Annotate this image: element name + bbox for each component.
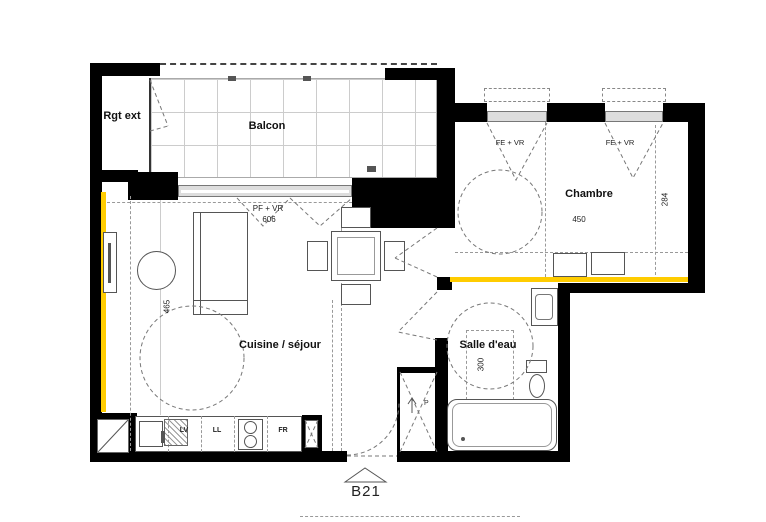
room-label-bathroom: Salle d'eau xyxy=(448,339,528,351)
bedroom-top-wall-b xyxy=(547,103,605,122)
balcony-drain xyxy=(367,166,376,172)
room-label-balcony: Balcon xyxy=(227,120,307,132)
room-label-storage: Rgt ext xyxy=(92,110,152,122)
dim-bedroom-depth: 284 xyxy=(661,185,670,215)
bedroom-top-wall-a xyxy=(455,103,487,122)
dining-table-top xyxy=(337,237,375,275)
bathroom-door-swing xyxy=(398,292,437,340)
unit-number: B21 xyxy=(336,483,396,500)
entrance-door-swing xyxy=(347,403,399,456)
window-shutter-box xyxy=(484,88,550,102)
bedroom-bottom-wall xyxy=(558,283,705,293)
room-label-bedroom: Chambre xyxy=(549,188,629,200)
dim-bay-width: 606 xyxy=(249,215,289,224)
bathroom-right-wall xyxy=(558,283,570,462)
dim-bedroom-width: 450 xyxy=(559,215,599,224)
closet-side-wall xyxy=(397,372,400,452)
faucet xyxy=(161,431,165,443)
bedroom-window-2 xyxy=(605,111,663,122)
cooktop-burner xyxy=(244,435,257,448)
living-corner-wall xyxy=(128,172,178,200)
chair xyxy=(341,207,371,228)
counter-divider xyxy=(201,416,202,452)
entry-niche xyxy=(97,419,129,453)
cooktop-burner xyxy=(244,421,257,434)
chair xyxy=(341,284,371,305)
turning-circle-living xyxy=(140,306,244,410)
window-swing xyxy=(487,123,547,180)
floor-plan: Balcon Rgt ext Chambre Cuisine / séjour … xyxy=(0,0,766,522)
opening-label-window-1: FE + VR xyxy=(480,138,540,147)
chair xyxy=(384,241,405,271)
accent-wall-bedroom xyxy=(450,277,688,282)
bay-threshold-line xyxy=(107,202,352,203)
railing-post xyxy=(303,76,311,81)
balcony-top-right-wall xyxy=(385,68,437,80)
exterior-wall-bottom-right xyxy=(397,451,570,462)
window-shutter-box xyxy=(602,88,666,102)
closet-arrow-icon xyxy=(408,398,416,413)
shower-tray xyxy=(452,403,552,447)
toilet-tank xyxy=(526,360,547,373)
balcony-railing xyxy=(150,63,437,65)
shower-drain xyxy=(461,437,465,441)
counter-divider xyxy=(234,416,235,452)
bedroom-window-1 xyxy=(487,111,547,122)
exterior-wall-right xyxy=(688,103,705,293)
counter-divider xyxy=(267,416,268,452)
guide-line xyxy=(300,516,520,517)
entrance-marker-icon xyxy=(345,468,386,482)
balcony-bedroom-wall xyxy=(437,68,455,180)
guide-line xyxy=(545,122,546,277)
toilet-bowl xyxy=(529,374,545,398)
side-table xyxy=(137,251,176,290)
dim-living-depth: 465 xyxy=(163,292,172,322)
technical-duct xyxy=(305,420,318,448)
railing-post xyxy=(228,76,236,81)
bedroom-cabinet xyxy=(591,252,625,275)
closet-top-wall xyxy=(397,367,440,373)
storage-partition-wall xyxy=(149,78,151,172)
guide-line xyxy=(130,196,131,451)
opening-label-window-2: FE + VR xyxy=(590,138,650,147)
balcony-bay-window-glass xyxy=(181,190,349,193)
closet-cross xyxy=(400,372,437,452)
bedroom-cabinet xyxy=(553,253,587,277)
exterior-wall-top xyxy=(90,63,160,76)
sofa-back-line xyxy=(193,300,248,301)
radiator-element xyxy=(108,243,111,283)
guide-line xyxy=(332,300,333,451)
chair xyxy=(307,241,328,271)
washbasin-bowl xyxy=(535,294,553,320)
sink xyxy=(139,421,163,447)
room-label-living: Cuisine / séjour xyxy=(210,339,350,351)
bathroom-left-wall xyxy=(435,338,448,462)
appliance-label-fridge: FR xyxy=(268,427,298,434)
dim-bathroom-clearance: 300 xyxy=(477,350,486,380)
closet-label: P xyxy=(424,400,429,407)
appliance-label-dishwasher: LV xyxy=(169,427,199,434)
turning-circle-bedroom xyxy=(458,170,542,254)
guide-line xyxy=(160,200,161,415)
opening-label-bay: PF + VR xyxy=(238,204,298,213)
appliance-label-washer: LL xyxy=(202,427,232,434)
accent-wall-left xyxy=(101,192,106,412)
